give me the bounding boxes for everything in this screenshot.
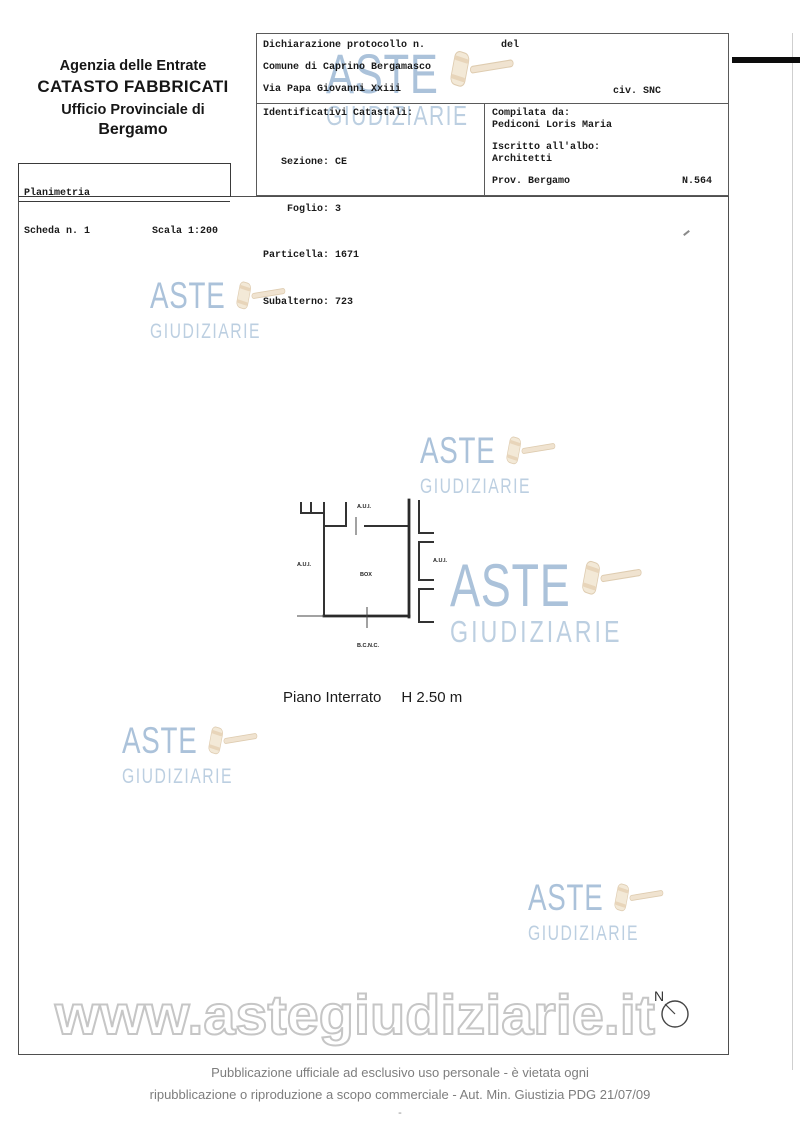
protocol-del-label: del [501,40,519,51]
cadastral-row-subalterno: Subalterno: 723 [263,295,359,311]
agency-office-line: Ufficio Provinciale di [23,102,243,118]
register-label: Iscritto all'albo: [492,142,600,155]
planimetria-title: Planimetria [19,186,230,202]
protocol-label: Dichiarazione protocollo n. [263,40,425,51]
agency-city: Bergamo [23,121,243,139]
plan-label-bcnc: B.C.N.C. [357,643,379,649]
page-edge-line [792,33,793,1070]
register-number: N.564 [682,176,712,189]
footer-disclaimer: Pubblicazione ufficiale ad esclusivo uso… [0,1062,800,1120]
plan-label-aui-left: A.U.I. [297,562,312,568]
comune-value: Comune di Caprino Bergamasco [263,62,431,73]
agency-catasto-title: CATASTO FABBRICATI [23,77,243,97]
declaration-box: Dichiarazione protocollo n. del Comune d… [257,34,728,104]
agency-line: Agenzia delle Entrate [23,58,243,74]
floor-caption: Piano Interrato H 2.50 m [283,689,462,706]
disclaimer-line-1: Pubblicazione ufficiale ad esclusivo uso… [0,1062,800,1084]
disclaimer-line-2: ripubblicazione o riproduzione a scopo c… [0,1084,800,1106]
cadastral-identifiers-box: Identificativi Catastali: Sezione: CE Fo… [257,103,485,195]
compass-n-label: N [654,988,664,1004]
compiler-name: Pediconi Loris Maria [492,120,612,133]
scheda-number: Scheda n. 1 [24,226,90,237]
scan-artifact-bar [732,57,800,63]
cadastral-row-foglio: Foglio: 3 [263,202,359,218]
plan-label-aui-top: A.U.I. [357,504,372,510]
plan-label-aui-right: A.U.I. [433,558,448,564]
planimetria-box: Planimetria Scheda n. 1 Scala 1:200 [18,163,231,197]
floor-name: Piano Interrato [283,689,381,706]
scale-value: Scala 1:200 [152,226,218,237]
floor-height: H 2.50 m [401,689,462,706]
street-value: Via Papa Giovanni Xxiii [263,84,401,95]
floor-plan-drawing: A.U.I. A.U.I. A.U.I. BOX B.C.N.C. [290,486,470,664]
province-value: Prov. Bergamo [492,176,570,189]
plan-label-box: BOX [360,572,372,578]
cadastral-row-sezione: Sezione: CE [263,155,359,171]
disclaimer-dash: - [0,1106,800,1120]
register-value: Architetti [492,154,552,167]
scanned-cadastral-document: Agenzia delle Entrate CATASTO FABBRICATI… [0,0,800,1131]
compiler-box: Compilata da: Pediconi Loris Maria Iscri… [484,103,728,195]
cadastral-row-particella: Particella: 1671 [263,248,359,264]
declaration-form: Dichiarazione protocollo n. del Comune d… [256,33,729,196]
compiler-label: Compilata da: [492,108,570,121]
north-compass-icon: N [648,984,694,1032]
agency-heading: Agenzia delle Entrate CATASTO FABBRICATI… [23,58,243,139]
civic-number: civ. SNC [613,86,661,97]
cadastral-title: Identificativi Catastali: [263,108,413,119]
